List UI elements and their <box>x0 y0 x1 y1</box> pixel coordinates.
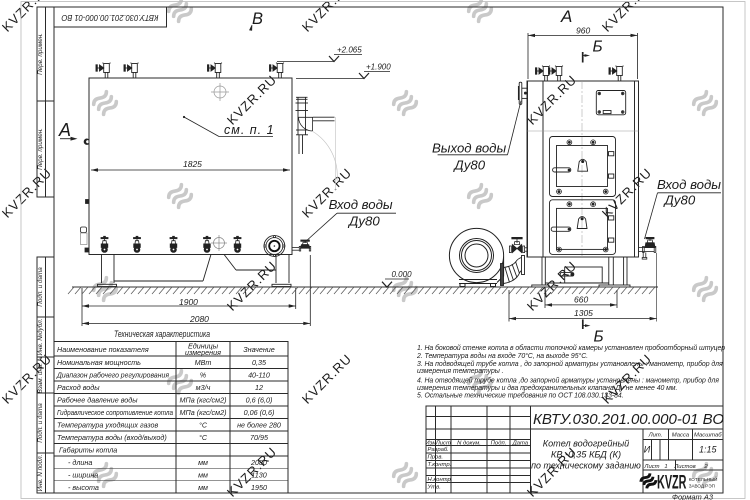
svg-text:Инв. N подл.: Инв. N подл. <box>36 455 44 492</box>
svg-text:1130: 1130 <box>251 470 266 479</box>
svg-text:5. Остальные технические треб: 5. Остальные технические требования по О… <box>417 392 624 400</box>
svg-text:KVZR: KVZR <box>657 473 687 494</box>
svg-text:Взам. инв. N: Взам. инв. N <box>37 356 44 393</box>
svg-text:°С: °С <box>199 420 208 429</box>
svg-text:измерения температуры .: измерения температуры . <box>417 368 504 375</box>
svg-text:Температура воды (вход/выход): Температура воды (вход/выход) <box>57 433 167 442</box>
svg-text:12: 12 <box>255 383 263 392</box>
svg-text:Ду80: Ду80 <box>663 193 696 208</box>
svg-text:ЗАВОД РЭП: ЗАВОД РЭП <box>689 483 715 488</box>
svg-text:КВ -0,35 КБД (К): КВ -0,35 КБД (К) <box>551 450 621 460</box>
svg-text:И: И <box>644 445 651 455</box>
svg-text:2. Температура воды на входе: 2. Температура воды на входе 70°С, на вы… <box>416 352 588 360</box>
svg-text:0,6 (6,0): 0,6 (6,0) <box>246 396 273 405</box>
svg-text:Наименование показателя: Наименование показателя <box>57 345 149 354</box>
svg-text:Формат А3: Формат А3 <box>672 493 714 500</box>
svg-text:Котел водогрейный: Котел водогрейный <box>543 439 630 449</box>
svg-text:- длина: - длина <box>68 458 92 467</box>
svg-text:мм: мм <box>198 483 208 492</box>
svg-text:1. На боковой стенке котла в: 1. На боковой стенке котла в области топ… <box>417 344 725 352</box>
svg-text:Листов: Листов <box>673 464 695 470</box>
svg-text:660: 660 <box>574 294 588 304</box>
svg-text:Изм: Изм <box>425 440 436 446</box>
svg-text:Утв.: Утв. <box>427 485 441 491</box>
svg-text:Подп.: Подп. <box>491 440 507 446</box>
svg-text:Вход воды: Вход воды <box>329 197 393 212</box>
svg-text:м3/ч: м3/ч <box>196 383 211 392</box>
svg-text:Б: Б <box>594 329 604 346</box>
svg-text:2080: 2080 <box>250 458 267 467</box>
svg-text:- ширина: - ширина <box>68 470 98 479</box>
svg-text:МПа (кгс/см2): МПа (кгс/см2) <box>180 396 227 405</box>
svg-text:0.000: 0.000 <box>392 270 413 279</box>
svg-text:Температура уходящих газов: Температура уходящих газов <box>57 420 159 429</box>
svg-text:А: А <box>560 7 572 26</box>
svg-text:Н.контр.: Н.контр. <box>428 477 453 483</box>
svg-text:КОТЕЛЬНЫЙ: КОТЕЛЬНЫЙ <box>689 475 718 482</box>
svg-text:Гидравлическое сопротивление к: Гидравлическое сопротивление котла <box>57 408 173 417</box>
svg-text:- высота: - высота <box>68 483 99 492</box>
svg-text:4. На отводящей трубе котла ,: 4. На отводящей трубе котла ,до запорной… <box>417 377 719 385</box>
svg-text:40-110: 40-110 <box>248 371 270 380</box>
svg-text:КВТУ.030.201.00.000-01 ВО: КВТУ.030.201.00.000-01 ВО <box>533 411 724 428</box>
svg-text:1950: 1950 <box>251 483 267 492</box>
svg-text:1825: 1825 <box>183 159 202 169</box>
svg-text:Перв. примен.: Перв. примен. <box>37 128 44 170</box>
svg-text:1305: 1305 <box>574 308 593 318</box>
svg-text:Рабочее давление воды: Рабочее давление воды <box>57 396 138 405</box>
svg-text:2080: 2080 <box>189 314 209 324</box>
svg-text:Выход воды: Выход воды <box>432 141 506 156</box>
svg-text:Расход воды: Расход воды <box>57 383 100 392</box>
svg-text:960: 960 <box>576 25 590 35</box>
svg-text:0,35: 0,35 <box>252 358 267 367</box>
svg-text:Лист: Лист <box>435 440 451 446</box>
svg-text:Ду80: Ду80 <box>347 214 380 229</box>
svg-text:Перв. примен.: Перв. примен. <box>37 33 44 75</box>
svg-text:Т.контр.: Т.контр. <box>428 462 452 468</box>
svg-text:2: 2 <box>703 464 708 470</box>
svg-text:N докум.: N докум. <box>457 440 481 446</box>
svg-text:измерения: измерения <box>185 348 221 357</box>
svg-text:см. п. 1: см. п. 1 <box>224 123 275 137</box>
svg-text:не более 280: не более 280 <box>237 420 281 429</box>
svg-text:КВТУ.030.201.00.000-01 ВО: КВТУ.030.201.00.000-01 ВО <box>62 13 159 22</box>
svg-text:Подп. и дата: Подп. и дата <box>36 267 44 307</box>
svg-text:Б: Б <box>593 39 603 56</box>
svg-text:Лист: Лист <box>643 464 659 470</box>
svg-text:1: 1 <box>664 464 667 470</box>
svg-text:В: В <box>252 10 263 28</box>
svg-text:+2.065: +2.065 <box>337 46 362 55</box>
svg-text:Ду80: Ду80 <box>452 158 485 173</box>
svg-text:1:15: 1:15 <box>699 445 718 455</box>
svg-text:Разраб.: Разраб. <box>428 447 449 453</box>
svg-text:3. На подводящей трубе котла: 3. На подводящей трубе котла , до запорн… <box>417 360 723 368</box>
svg-text:Подп. и дата: Подп. и дата <box>36 403 44 443</box>
svg-text:Лит.: Лит. <box>648 433 663 439</box>
svg-text:мм: мм <box>198 458 208 467</box>
svg-text:Масса: Масса <box>672 433 690 439</box>
svg-text:Дата: Дата <box>512 440 529 446</box>
svg-text:%: % <box>200 371 207 380</box>
svg-text:Вход воды: Вход воды <box>657 177 721 192</box>
svg-text:МВт: МВт <box>195 358 212 367</box>
svg-text:Масштаб: Масштаб <box>694 433 722 439</box>
svg-text:измерения температуры и два пр: измерения температуры и два предохраните… <box>417 384 677 392</box>
svg-text:Значение: Значение <box>243 345 275 354</box>
svg-text:+1.900: +1.900 <box>366 63 391 72</box>
svg-text:мм: мм <box>198 470 208 479</box>
svg-text:А: А <box>58 120 71 140</box>
svg-text:по техническому заданию: по техническому заданию <box>531 461 641 471</box>
svg-text:Габариты котла: Габариты котла <box>59 445 117 454</box>
svg-text:Номинальная мощность: Номинальная мощность <box>57 358 141 367</box>
svg-text:Техническая характеристика: Техническая характеристика <box>114 329 210 339</box>
svg-text:0,06 (0,6): 0,06 (0,6) <box>244 408 275 417</box>
svg-text:Инв. №дубл.: Инв. №дубл. <box>36 319 44 356</box>
svg-text:°С: °С <box>199 433 208 442</box>
svg-text:МПа (кгс/см2): МПа (кгс/см2) <box>180 408 227 417</box>
svg-text:1900: 1900 <box>179 297 198 307</box>
svg-text:70/95: 70/95 <box>250 433 269 442</box>
svg-text:Пров.: Пров. <box>428 455 444 461</box>
svg-text:Диапазон рабочего регулировани: Диапазон рабочего регулирования <box>56 371 169 380</box>
